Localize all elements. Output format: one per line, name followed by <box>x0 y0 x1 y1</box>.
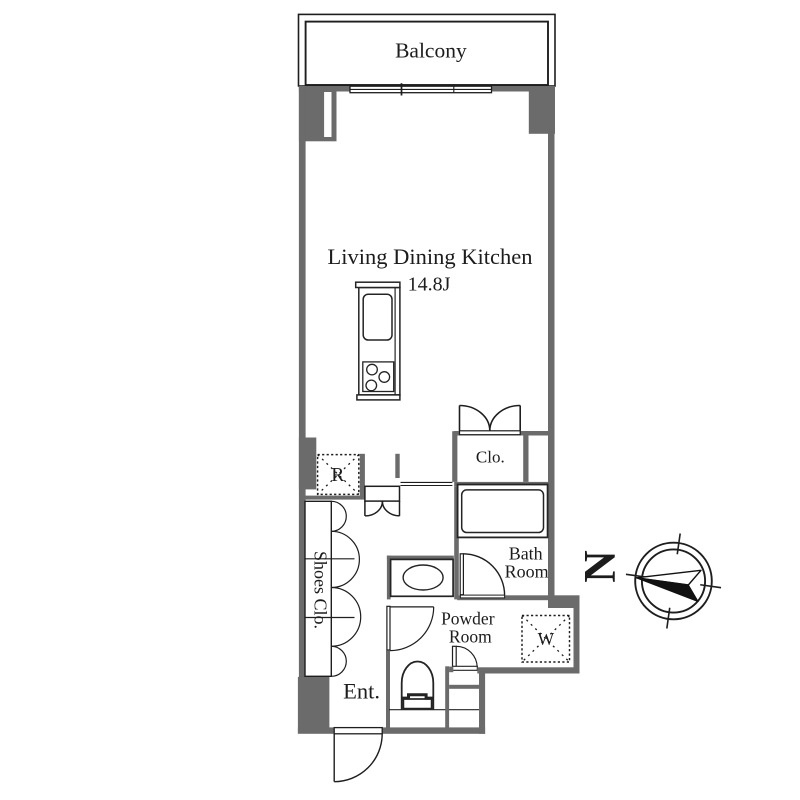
svg-text:Powder: Powder <box>441 609 495 629</box>
svg-text:R: R <box>331 465 344 486</box>
svg-text:14.8J: 14.8J <box>408 274 451 296</box>
svg-text:Living Dining Kitchen: Living Dining Kitchen <box>328 244 533 269</box>
svg-text:W: W <box>538 629 555 649</box>
svg-text:Bath: Bath <box>509 544 543 564</box>
svg-text:Shoes Clo.: Shoes Clo. <box>311 551 331 629</box>
svg-text:Ent.: Ent. <box>343 678 380 703</box>
svg-text:Balcony: Balcony <box>395 39 467 63</box>
svg-text:Room: Room <box>505 562 549 582</box>
svg-text:N: N <box>575 550 625 583</box>
svg-text:Clo.: Clo. <box>476 448 505 467</box>
svg-text:Room: Room <box>449 627 492 647</box>
